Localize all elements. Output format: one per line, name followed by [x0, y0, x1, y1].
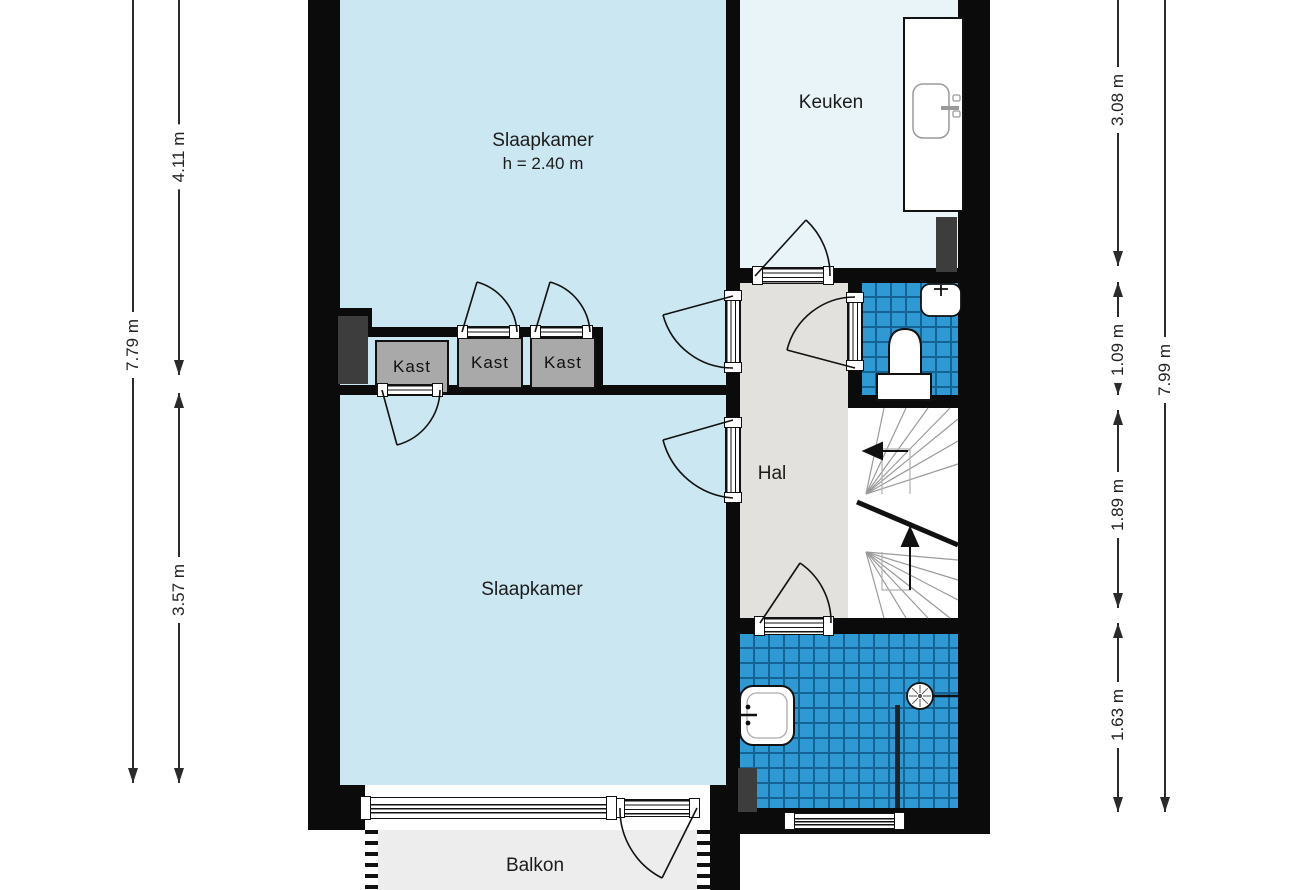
dim-arrow [1160, 797, 1170, 812]
dim-arrow [1113, 593, 1123, 608]
label-bedroom-top: Slaapkamer [492, 130, 593, 152]
dim-arrow [1113, 623, 1123, 638]
floor-plan: Kast Kast Kast [0, 0, 1300, 890]
door-closet1-threshold [380, 385, 440, 395]
door-closet3-threshold [533, 327, 590, 337]
closet-label: Kast [471, 353, 509, 373]
duct-bathroom [738, 768, 757, 812]
room-wc [862, 283, 958, 395]
duct-closet-niche [338, 316, 368, 384]
dim-line-right-total [1164, 0, 1166, 812]
closet-label: Kast [393, 357, 431, 377]
dim-arrow [174, 393, 184, 408]
closet-2: Kast [457, 337, 523, 389]
dim-arrow [1113, 797, 1123, 812]
dim-arrow [128, 768, 138, 783]
dim-line-left-total [132, 0, 134, 783]
door-bedroom-top-threshold [726, 293, 740, 370]
door-wc-threshold [848, 295, 862, 368]
label-hall: Hal [758, 463, 787, 485]
dim-arrow [174, 360, 184, 375]
dim-label-right-kitchen: 3.08 m [1105, 67, 1131, 133]
shower-partition [895, 705, 900, 808]
door-kitchen-threshold [755, 268, 831, 283]
door-balcony-threshold [617, 800, 697, 816]
kitchen-counter [903, 17, 964, 212]
dim-label-right-wc: 1.09 m [1105, 317, 1131, 383]
wall-closet-top-b [368, 327, 460, 337]
wall-balcony-right [710, 785, 740, 890]
window-bathroom [787, 814, 902, 828]
room-bathroom [740, 634, 958, 808]
dim-arrow [1113, 282, 1123, 297]
dim-label-left-total: 7.79 m [120, 312, 146, 378]
wall-wc-bottom [848, 395, 973, 408]
balcony-railing-left [365, 830, 378, 890]
dim-label-right-total: 7.99 m [1152, 337, 1178, 403]
balcony-railing-right [697, 830, 710, 890]
wall-bedroom-corner [308, 785, 365, 830]
door-bedroom-bottom-threshold [726, 420, 740, 500]
closet-3: Kast [530, 337, 596, 389]
dim-label-left-lower: 3.57 m [166, 557, 192, 623]
dim-label-left-upper: 4.11 m [166, 125, 192, 190]
door-bathroom-threshold [757, 618, 831, 634]
closet-label: Kast [544, 353, 582, 373]
window-bedroom-balcony [363, 798, 614, 818]
dim-label-right-bathroom: 1.63 m [1105, 682, 1131, 748]
label-bedroom-top-height: h = 2.40 m [503, 154, 584, 174]
stairwell [862, 408, 958, 618]
label-bedroom-bottom: Slaapkamer [481, 579, 582, 601]
dim-label-right-stairs: 1.89 m [1105, 472, 1131, 538]
duct-kitchen [936, 217, 957, 272]
wall-closet-bottom-a [338, 385, 380, 395]
door-closet2-threshold [460, 327, 517, 337]
dim-arrow [1113, 251, 1123, 266]
room-hall [740, 283, 848, 618]
wall-exterior-left [308, 0, 340, 830]
dim-arrow [174, 768, 184, 783]
dim-arrow [1113, 410, 1123, 425]
wall-bedroom-kitchen [726, 0, 740, 283]
label-balcony: Balkon [506, 855, 564, 877]
label-kitchen: Keuken [799, 92, 863, 114]
dim-line-right-kitchen [1117, 0, 1119, 266]
